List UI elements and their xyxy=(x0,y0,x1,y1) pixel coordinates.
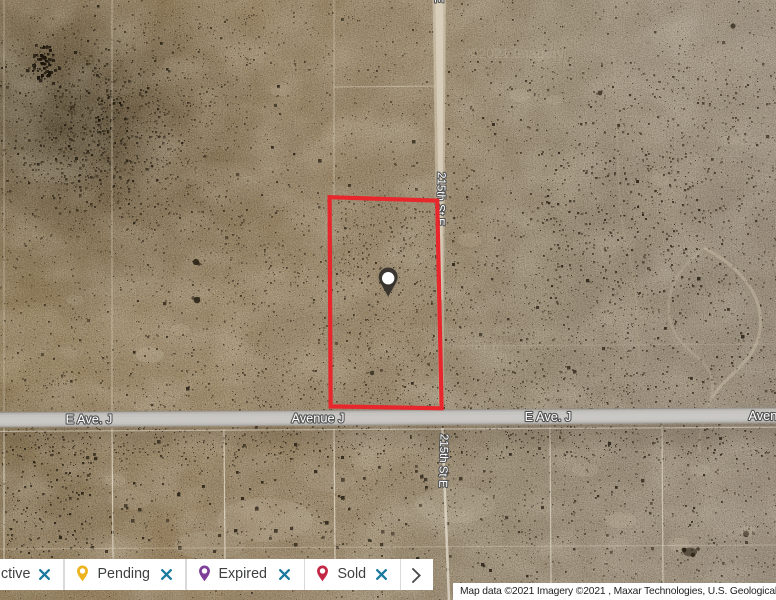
svg-text:Avenue J: Avenue J xyxy=(748,408,776,423)
svg-text:Avenue J: Avenue J xyxy=(291,410,344,425)
svg-text:215th St E: 215th St E xyxy=(432,0,446,3)
svg-text:©2021 Maxar: ©2021 Maxar xyxy=(450,337,529,352)
svg-text:©2021 Imagery: ©2021 Imagery xyxy=(468,45,564,61)
svg-text:215th St E: 215th St E xyxy=(436,434,449,488)
svg-text:E Ave. J: E Ave. J xyxy=(525,409,572,424)
svg-text:E Ave. J: E Ave. J xyxy=(66,412,113,427)
